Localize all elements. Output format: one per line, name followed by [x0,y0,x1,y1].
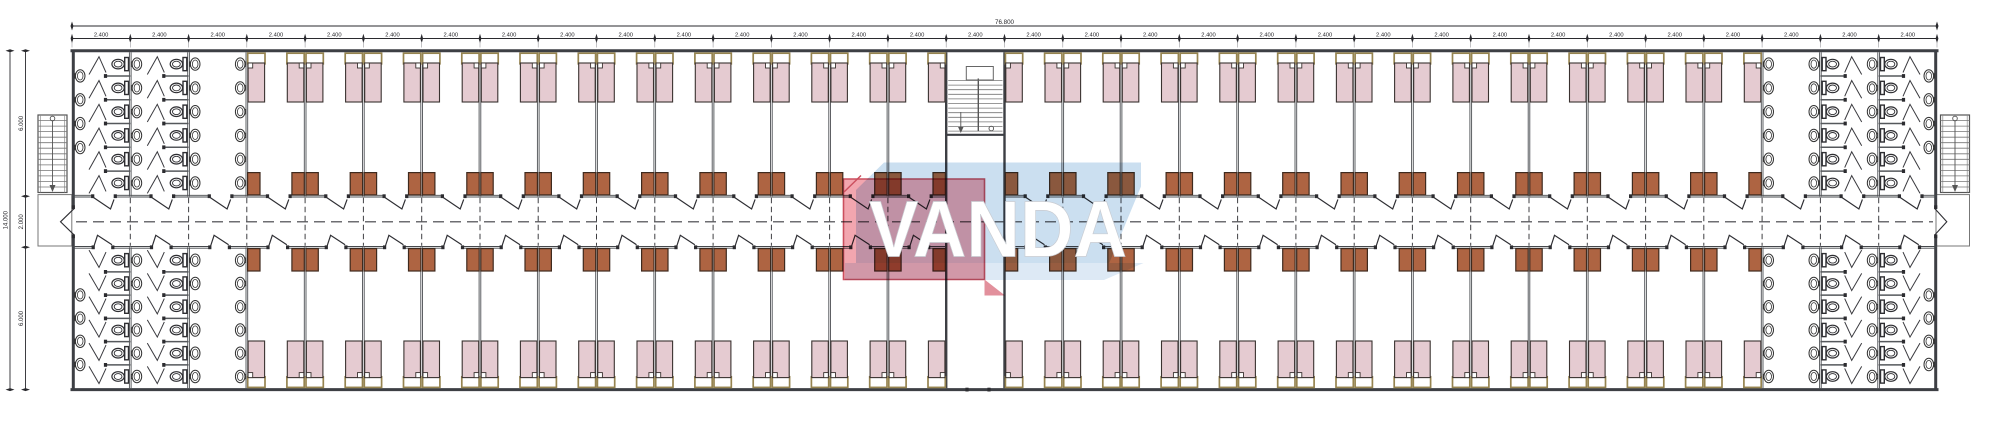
svg-text:2.400: 2.400 [560,32,575,38]
svg-text:2.400: 2.400 [1726,32,1741,38]
svg-text:2.400: 2.400 [210,32,225,38]
svg-text:2.400: 2.400 [1842,32,1857,38]
svg-text:2.400: 2.400 [1667,32,1682,38]
svg-text:2.400: 2.400 [677,32,692,38]
svg-text:2.400: 2.400 [735,32,750,38]
svg-text:2.400: 2.400 [1901,32,1916,38]
svg-text:2.400: 2.400 [1026,32,1041,38]
svg-text:6.000: 6.000 [19,115,25,131]
svg-text:VANDA: VANDA [869,185,1127,274]
svg-text:2.400: 2.400 [1493,32,1508,38]
svg-text:2.400: 2.400 [385,32,400,38]
svg-text:2.400: 2.400 [1609,32,1624,38]
svg-text:2.400: 2.400 [1259,32,1274,38]
svg-text:2.400: 2.400 [269,32,284,38]
svg-text:2.400: 2.400 [1318,32,1333,38]
svg-text:2.400: 2.400 [1085,32,1100,38]
svg-text:2.400: 2.400 [1784,32,1799,38]
svg-text:2.400: 2.400 [968,32,983,38]
svg-text:2.400: 2.400 [1201,32,1216,38]
svg-text:2.400: 2.400 [1551,32,1566,38]
svg-text:2.400: 2.400 [1376,32,1391,38]
svg-text:14.000: 14.000 [4,210,10,229]
svg-text:2.400: 2.400 [793,32,808,38]
svg-text:2.400: 2.400 [502,32,517,38]
svg-text:2.400: 2.400 [618,32,633,38]
svg-text:2.400: 2.400 [1434,32,1449,38]
svg-text:2.400: 2.400 [152,32,167,38]
svg-text:2.400: 2.400 [852,32,867,38]
svg-text:2.400: 2.400 [327,32,342,38]
svg-text:2.400: 2.400 [1143,32,1158,38]
svg-text:2.400: 2.400 [94,32,109,38]
svg-text:2.000: 2.000 [19,214,25,230]
svg-text:2.400: 2.400 [910,32,925,38]
svg-text:6.000: 6.000 [19,310,25,326]
svg-text:2.400: 2.400 [444,32,459,38]
svg-text:76.800: 76.800 [995,19,1014,26]
